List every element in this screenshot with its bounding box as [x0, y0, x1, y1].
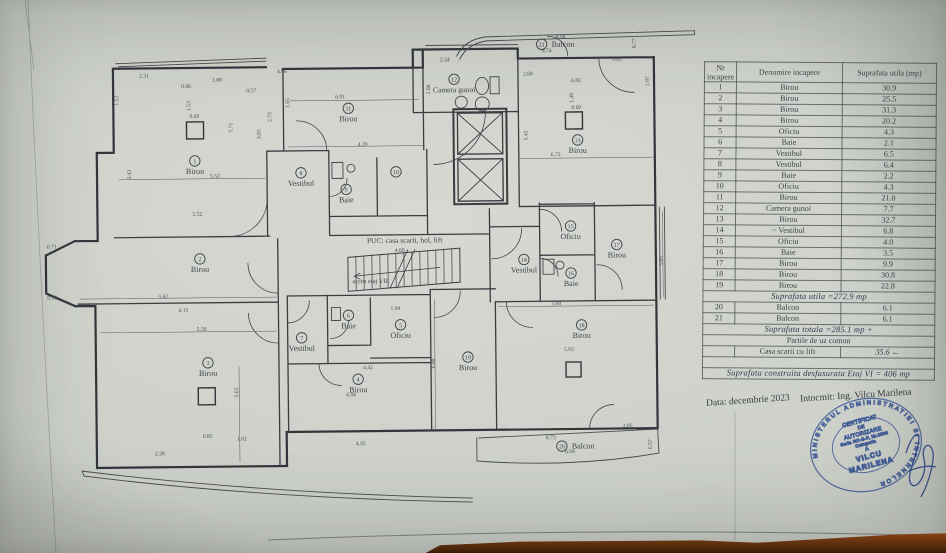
cell-room-number: 7 — [704, 148, 736, 159]
cell-room-area: 30.9 — [842, 83, 936, 95]
room-name: Balcon — [572, 441, 595, 450]
area-table-body: 1Birou30.92Birou25.53Birou31.34Birou20.2… — [702, 82, 936, 381]
dimension-text: 0.71 — [47, 244, 57, 250]
room-label-16: 16Baie — [564, 268, 579, 288]
room-label-12: 12Camera gunoi — [433, 74, 475, 95]
room-number: 18 — [579, 323, 585, 329]
room-label-10: 10 — [391, 167, 402, 178]
cell-room-area: 4.3 — [842, 127, 936, 139]
dimension-text: 6.01 — [335, 94, 345, 100]
dimension-text: 1.82 — [237, 436, 247, 442]
cell-room-area: 7.7 — [841, 204, 935, 216]
room-name: Birou — [186, 167, 204, 176]
room-number: 16 — [568, 271, 574, 277]
cell-room-area: 35.6 ← — [840, 347, 934, 359]
cell-room-area: 2.1 — [842, 138, 936, 150]
dimension-text: 5.71 — [228, 122, 234, 132]
dimension-text: 5.52 — [210, 174, 220, 180]
cell-room-area: 31.3 — [842, 105, 936, 117]
room-name: Birou — [339, 114, 357, 123]
cell-room-name: Balcon — [735, 302, 841, 314]
room-label-5: 5Oficiu — [390, 319, 411, 339]
room-name: Baie — [564, 279, 579, 288]
dimension-labels: 2.314.961.880.860.572.248.948.743.822.68… — [45, 33, 667, 460]
dimension-text: 2.24 — [440, 57, 450, 63]
dimension-text: 0.60 — [571, 105, 581, 111]
cell-room-name: Baie — [736, 170, 842, 182]
room-name: Birou — [573, 331, 591, 340]
dimension-text: 8.73 — [546, 435, 556, 441]
dimension-text: 1.88 — [212, 78, 222, 84]
cell-room-name: Camera gunoi — [736, 203, 842, 215]
room-number: 1 — [193, 159, 196, 165]
cell-room-number: 16 — [703, 247, 735, 258]
dimension-text: 0.57 — [246, 88, 256, 94]
interior-walls — [76, 57, 658, 468]
cell-room-area: 9.9 — [841, 259, 935, 271]
room-name: Baie — [341, 321, 356, 330]
dimension-text: 0.60 — [189, 114, 199, 120]
room-name: Birou — [569, 146, 587, 155]
room-label-7: 7Vestibul — [289, 332, 316, 352]
dimension-text: 4.29 — [358, 142, 368, 148]
dimension-text: 3.85 — [257, 129, 263, 139]
dimension-text: 6.94 — [565, 449, 575, 455]
cell-room-name: Birou — [736, 93, 842, 105]
dimension-text: 0.77 — [632, 38, 638, 48]
cell-room-area: 6.8 — [841, 226, 935, 238]
cell-room-area: 6.4 — [842, 160, 936, 172]
dimension-text: 0.86 — [181, 84, 191, 90]
room-label-18: 18Birou — [572, 320, 590, 340]
cell-room-name: Birou — [736, 214, 842, 226]
room-number: 10 — [393, 170, 399, 176]
dimension-text: 6.06 — [346, 392, 356, 398]
cell-room-number: 14 — [703, 225, 735, 236]
dimension-text: 5.45 — [524, 130, 530, 140]
cell-room-name: Birou — [736, 82, 842, 94]
cell-room-number — [703, 346, 735, 357]
cell-room-area: 21.0 — [841, 193, 935, 205]
dimension-text: 5.52 — [192, 212, 202, 218]
stair-access-caption: acces etaj VII — [352, 278, 388, 285]
cell-room-number: 2 — [704, 93, 736, 104]
room-number: 20 — [559, 444, 565, 450]
cell-room-name: Casa scarii cu lift — [735, 346, 841, 358]
room-number: 12 — [451, 77, 457, 83]
dimension-text: 4.95 — [356, 441, 366, 447]
cell-room-name: ~Vestibul — [735, 225, 841, 237]
room-number: 9 — [345, 188, 348, 194]
cell-room-area: 25.5 — [842, 94, 936, 106]
cell-room-number: 13 — [703, 214, 735, 225]
dimension-text: 0.85 — [203, 434, 213, 440]
dimension-text: 2.31 — [139, 73, 149, 79]
dimension-text: 5.58 — [197, 327, 207, 333]
dimension-text: 2.68 — [523, 71, 533, 77]
room-label-6: 6Baie — [341, 310, 356, 330]
dimension-text: 5.62 — [158, 294, 168, 300]
cell-room-area: 20.2 — [842, 116, 936, 128]
room-label-9: 9Baie — [339, 184, 354, 204]
dimension-text: 2.73 — [267, 112, 273, 122]
room-label-4: 4Birou — [349, 374, 367, 394]
cell-room-number: 1 — [704, 82, 736, 93]
cell-room-number: 20 — [703, 302, 735, 313]
cell-room-name: Oficiu — [735, 236, 841, 248]
dimension-text: 4.96 — [277, 69, 287, 75]
header-denumire: Denumire incapere — [737, 62, 843, 83]
cell-room-name: Oficiu — [736, 181, 842, 193]
cell-room-name: Birou — [735, 269, 841, 281]
room-number: 5 — [399, 323, 402, 329]
room-label-11: 11Birou — [339, 103, 357, 123]
room-label-20: 20Balcon — [557, 441, 595, 452]
table-row: Suprafata construita desfasurata Etaj VI… — [702, 368, 934, 381]
dimension-text: 2.85 — [623, 423, 633, 429]
room-name: Balcon — [552, 40, 575, 49]
cell-room-number: 17 — [703, 258, 735, 269]
dimension-text: 3.00 — [551, 301, 561, 307]
cell-room-area: 30.8 — [841, 270, 935, 282]
room-name: Birou — [191, 265, 209, 274]
cell-room-area: 32.7 — [841, 215, 935, 227]
area-table-header-row: Nr incapere Denumire incapere Suprafata … — [704, 62, 936, 84]
room-name: Vestibul — [511, 265, 538, 274]
cell-room-number: 10 — [704, 181, 736, 192]
room-label-3: 3Birou — [199, 358, 217, 378]
room-number: 4 — [357, 378, 360, 384]
cell-room-number: 21 — [703, 313, 735, 324]
dimension-text: 6.72 — [551, 152, 561, 158]
dimension-text: 3.82 — [612, 56, 622, 62]
cell-room-name: Birou — [736, 115, 842, 127]
room-name: Oficiu — [560, 232, 581, 241]
header-nr: Nr incapere — [704, 62, 736, 82]
balcony-terrace-lines — [78, 31, 700, 506]
cell-room-number: 4 — [704, 115, 736, 126]
cell-room-name: Vestibul — [736, 159, 842, 171]
dimension-text: 6.00 — [431, 358, 437, 368]
room-number: 6 — [347, 314, 350, 320]
dimension-text: 2.08 — [426, 84, 432, 94]
cell-room-number: 3 — [704, 104, 736, 115]
area-table: Nr incapere Denumire incapere Suprafata … — [702, 61, 937, 381]
dimension-text: 8.94 — [556, 34, 566, 40]
room-labels: 1Birou2Birou3Birou4Birou5Oficiu6Baie7Ves… — [184, 38, 628, 455]
room-label-8: 8Vestibul — [288, 167, 315, 187]
room-name: Birou — [459, 363, 477, 372]
cell-room-number: 8 — [704, 159, 736, 170]
room-number: 2 — [198, 257, 201, 263]
room-number: 8 — [299, 171, 302, 177]
dimension-text: 1.97 — [645, 76, 651, 86]
dimension-text: 6.82 — [571, 78, 581, 84]
cell-room-name: Birou — [735, 258, 841, 270]
stairwell-caption: PUC: casa scarii, hol, lift — [367, 235, 443, 245]
dimension-text: 4.42 — [363, 365, 373, 371]
dimension-text: 4.15 — [178, 308, 188, 314]
cell-room-name: Birou — [735, 280, 841, 292]
room-number: 14 — [521, 258, 527, 264]
room-name: Birou — [608, 250, 626, 259]
cell-room-number: 6 — [704, 137, 736, 148]
cell-room-area: 4.3 — [841, 182, 935, 194]
cell-room-area: 6.1 — [841, 303, 935, 315]
room-label-17: 17Birou — [608, 239, 626, 259]
cell-room-name: Birou — [736, 104, 842, 116]
dimension-text: 3.43 — [127, 169, 133, 179]
dimension-text: 4.60 — [395, 248, 405, 254]
room-label-13: 13Birou — [568, 135, 586, 155]
cell-room-name: Vestibul — [736, 148, 842, 160]
dimension-text: 1.65 — [285, 98, 291, 108]
dimension-text: 5.65 — [234, 387, 240, 397]
room-label-19: 19Birou — [459, 352, 477, 372]
room-label-14: 14Vestibul — [511, 254, 538, 274]
room-name: Camera gunoi — [433, 85, 475, 94]
handwritten-note: Suprafata construita desfasurata Etaj VI… — [702, 368, 934, 381]
cell-room-number: 19 — [703, 280, 735, 291]
dimension-text: 1.94 — [390, 306, 400, 312]
room-label-2: 2Birou — [191, 254, 209, 274]
room-number: 7 — [300, 336, 303, 342]
header-suprafata: Suprafata utila (mp) — [842, 63, 936, 84]
dimension-text: 5.93 — [564, 347, 574, 353]
handwritten-mark: ~ — [772, 226, 776, 235]
room-label-1: 1Birou — [186, 156, 204, 176]
room-number: 13 — [575, 138, 581, 144]
room-number: 15 — [568, 224, 574, 230]
cell-room-number: 18 — [703, 269, 735, 280]
cell-room-area: 4.0 — [841, 237, 935, 249]
cell-room-area: 2.2 — [842, 171, 936, 183]
room-name: Vestibul — [288, 179, 315, 188]
dimension-text: 2.28 — [155, 451, 165, 457]
cell-room-number: 15 — [703, 236, 735, 247]
cell-room-area: 3.5 — [841, 248, 935, 260]
dimension-text: 1.53 — [186, 101, 192, 111]
room-number: 3 — [206, 361, 209, 367]
dimension-text: 8.74 — [542, 48, 552, 54]
dimension-text: 5.65 — [659, 256, 665, 266]
cell-room-name: Birou — [736, 192, 842, 204]
cell-room-area: 6.5 — [842, 149, 936, 161]
cell-room-name: Baie — [736, 137, 842, 149]
room-number: 17 — [614, 243, 620, 249]
dimension-text: 1.52 — [114, 96, 120, 106]
cell-room-name: Baie — [735, 247, 841, 259]
room-name: Birou — [199, 369, 217, 378]
cell-room-name: Balcon — [735, 313, 841, 325]
room-number: 19 — [465, 355, 471, 361]
cell-room-number: 12 — [704, 203, 736, 214]
dimension-text: 1.49 — [569, 93, 575, 103]
room-name: Oficiu — [390, 331, 411, 340]
room-label-15: 15Oficiu — [560, 221, 581, 241]
cell-room-number: 9 — [704, 170, 736, 181]
dimension-text: 0.90 — [47, 295, 57, 301]
photo-of-floor-plan-document: 1Birou2Birou3Birou4Birou5Oficiu6Baie7Ves… — [0, 0, 946, 553]
room-name: Baie — [339, 195, 354, 204]
room-number: 11 — [345, 107, 351, 113]
cell-room-number: 5 — [704, 126, 736, 137]
cell-room-number: 11 — [704, 192, 736, 203]
dimension-text: 6.57 — [648, 439, 654, 449]
cell-room-name: Oficiu — [736, 126, 842, 138]
room-name: Vestibul — [289, 344, 316, 353]
authorization-stamp: MINISTERUL ADMINISTRATIEI SI INTERNELOR … — [788, 383, 946, 523]
